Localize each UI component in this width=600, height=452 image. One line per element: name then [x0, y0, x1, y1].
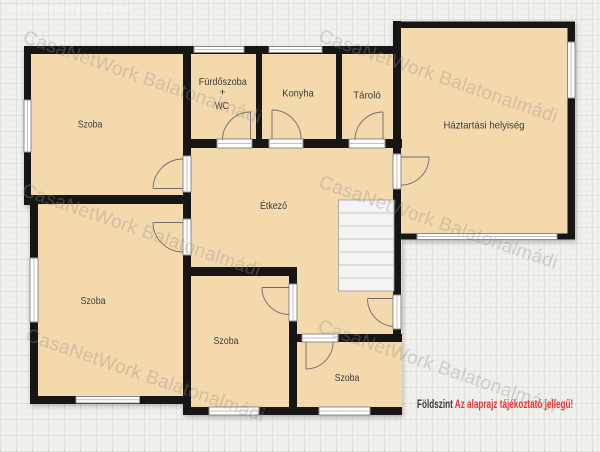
svg-text:Szoba: Szoba	[81, 295, 106, 307]
svg-text:Szoba: Szoba	[335, 372, 360, 384]
svg-text:Szoba: Szoba	[78, 119, 103, 131]
svg-text:Konyha: Konyha	[282, 88, 314, 100]
svg-text:Háztartási helyiség: Háztartási helyiség	[444, 120, 525, 132]
svg-text:Tároló: Tároló	[353, 90, 381, 102]
svg-text:Étkező: Étkező	[260, 199, 287, 212]
svg-text:Szoba: Szoba	[214, 335, 239, 347]
